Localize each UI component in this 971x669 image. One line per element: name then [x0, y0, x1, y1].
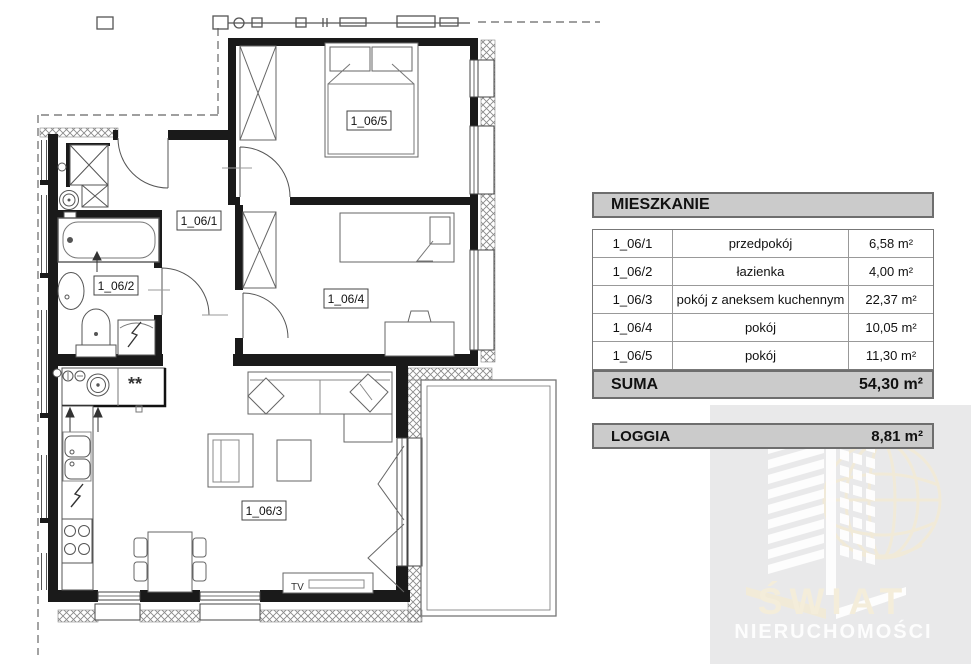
suma-row: SUMA 54,30 m²: [592, 370, 934, 399]
dining-table: [134, 532, 206, 592]
hall-fixtures: [58, 145, 108, 219]
corner-sofa: [248, 372, 392, 442]
room-name: pokój: [673, 314, 849, 341]
bathtub: [58, 218, 159, 262]
desk: [385, 311, 454, 356]
room-name: pokój z aneksem kuchennym: [673, 286, 849, 313]
toilet: [76, 309, 116, 357]
loggia-label: LOGGIA: [611, 428, 670, 445]
entry-door: [118, 138, 168, 188]
tv-cabinet: TV: [283, 573, 373, 593]
floorplan-page: { "plan": { "room_labels": ["1_06/1", "1…: [0, 0, 971, 664]
room4-door: [243, 293, 288, 338]
room-name: łazienka: [673, 258, 849, 285]
room-area: 11,30 m²: [849, 342, 933, 369]
room-name: pokój: [673, 342, 849, 369]
neighbor-left-wall: [40, 140, 48, 590]
room-label-1063: 1_06/3: [242, 501, 286, 520]
single-bed: [340, 213, 454, 262]
apartment-rooms-table: 1_06/1 przedpokój 6,58 m² 1_06/2 łazienk…: [592, 229, 934, 370]
table-row: 1_06/3 pokój z aneksem kuchennym 22,37 m…: [593, 286, 933, 314]
washer-under-counter: [87, 374, 109, 396]
svg-text:1_06/1: 1_06/1: [181, 214, 218, 228]
loggia-outline: [421, 380, 556, 616]
table-row: 1_06/4 pokój 10,05 m²: [593, 314, 933, 342]
svg-text:1_06/2: 1_06/2: [98, 279, 135, 293]
room-id: 1_06/3: [593, 286, 673, 313]
watermark-brand-line2: NIERUCHOMOŚCI: [710, 621, 957, 644]
room-id: 1_06/4: [593, 314, 673, 341]
table-row: 1_06/5 pokój 11,30 m²: [593, 342, 933, 369]
table-row: 1_06/2 łazienka 4,00 m²: [593, 258, 933, 286]
room5-furniture: [240, 43, 418, 157]
room-id: 1_06/2: [593, 258, 673, 285]
room-id: 1_06/1: [593, 230, 673, 257]
room-area: 10,05 m²: [849, 314, 933, 341]
living-furniture: TV: [134, 372, 392, 593]
room5-door: [240, 147, 290, 197]
bathroom-door: [162, 268, 209, 315]
suma-label: SUMA: [611, 376, 658, 394]
room-id: 1_06/5: [593, 342, 673, 369]
room-area: 22,37 m²: [849, 286, 933, 313]
room-name: przedpokój: [673, 230, 849, 257]
stove: [62, 519, 92, 563]
neighbor-top-wall: [97, 16, 470, 29]
room-area: 4,00 m²: [849, 258, 933, 285]
loggia-area: 8,81 m²: [871, 428, 923, 445]
svg-text:1_06/4: 1_06/4: [328, 292, 365, 306]
suma-area: 54,30 m²: [859, 376, 923, 394]
room-label-1065: 1_06/5: [347, 111, 391, 130]
room-label-1062: 1_06/2: [94, 276, 138, 295]
coffee-tables: [208, 434, 311, 487]
loggia-row: LOGGIA 8,81 m²: [592, 423, 934, 449]
wardrobe: [240, 46, 276, 140]
kitchen-marks: **: [128, 374, 142, 394]
apartment-table-title: MIESZKANIE: [611, 196, 710, 214]
wardrobe: [243, 212, 276, 288]
watermark-brand-line1: ŚWIAT: [710, 581, 957, 623]
double-bed: [325, 43, 418, 157]
svg-text:1_06/5: 1_06/5: [351, 114, 388, 128]
apartment-table-header: MIESZKANIE: [592, 192, 934, 218]
svg-text:1_06/3: 1_06/3: [246, 504, 283, 518]
room-label-1064: 1_06/4: [324, 289, 368, 308]
room4-furniture: [243, 212, 454, 356]
pipe: [58, 163, 66, 171]
floorplan-drawing: TV ** 1_06/1 1_06/2 1_06/3 1_06/4 1_06/5: [0, 0, 600, 664]
tv-label: TV: [291, 582, 304, 593]
table-row: 1_06/1 przedpokój 6,58 m²: [593, 230, 933, 258]
washbasin: [58, 273, 84, 310]
room-area: 6,58 m²: [849, 230, 933, 257]
room-label-1061: 1_06/1: [177, 211, 221, 230]
washing-machine: [118, 320, 155, 355]
